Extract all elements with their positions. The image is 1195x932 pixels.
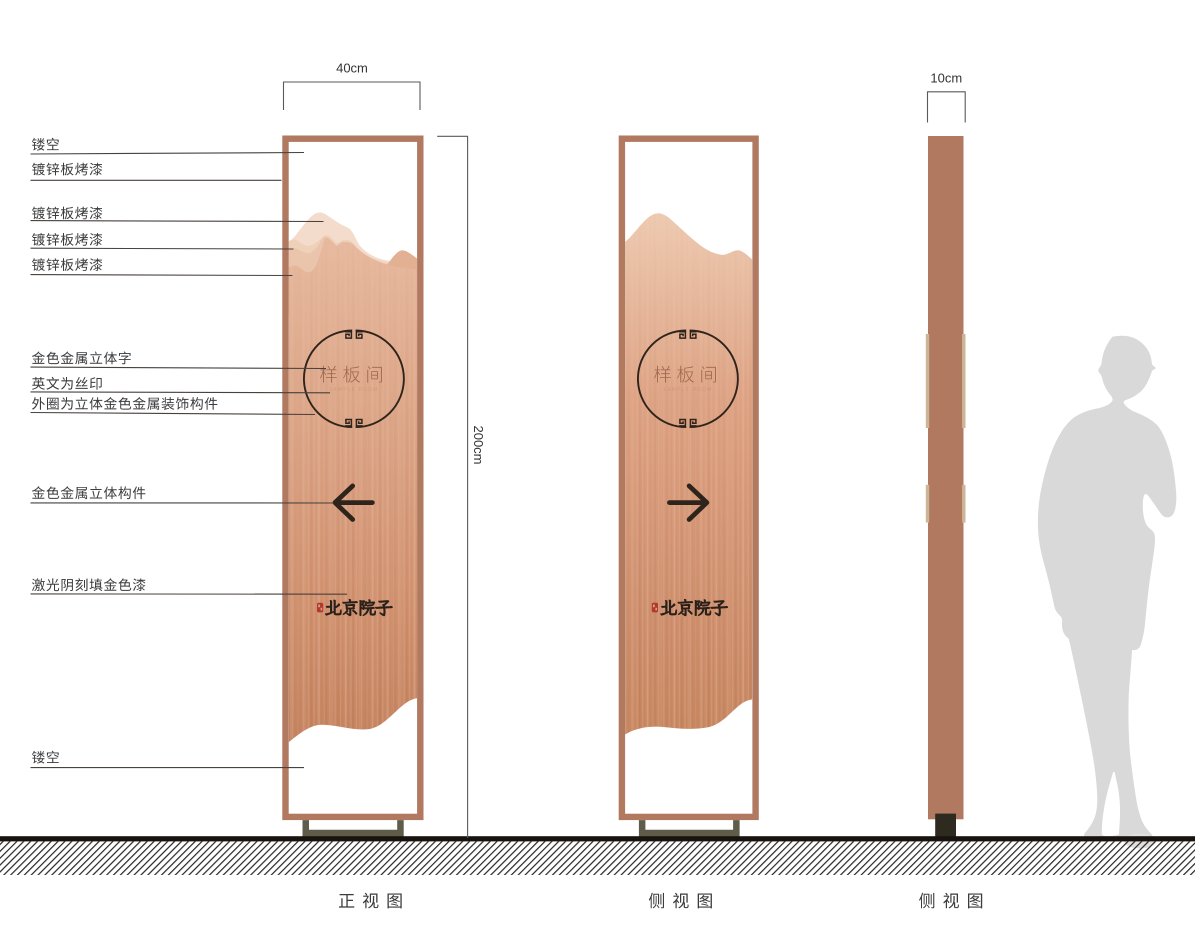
svg-text:10cm: 10cm (930, 71, 962, 86)
svg-text:40cm: 40cm (336, 61, 368, 76)
svg-text:200cm: 200cm (471, 425, 486, 464)
